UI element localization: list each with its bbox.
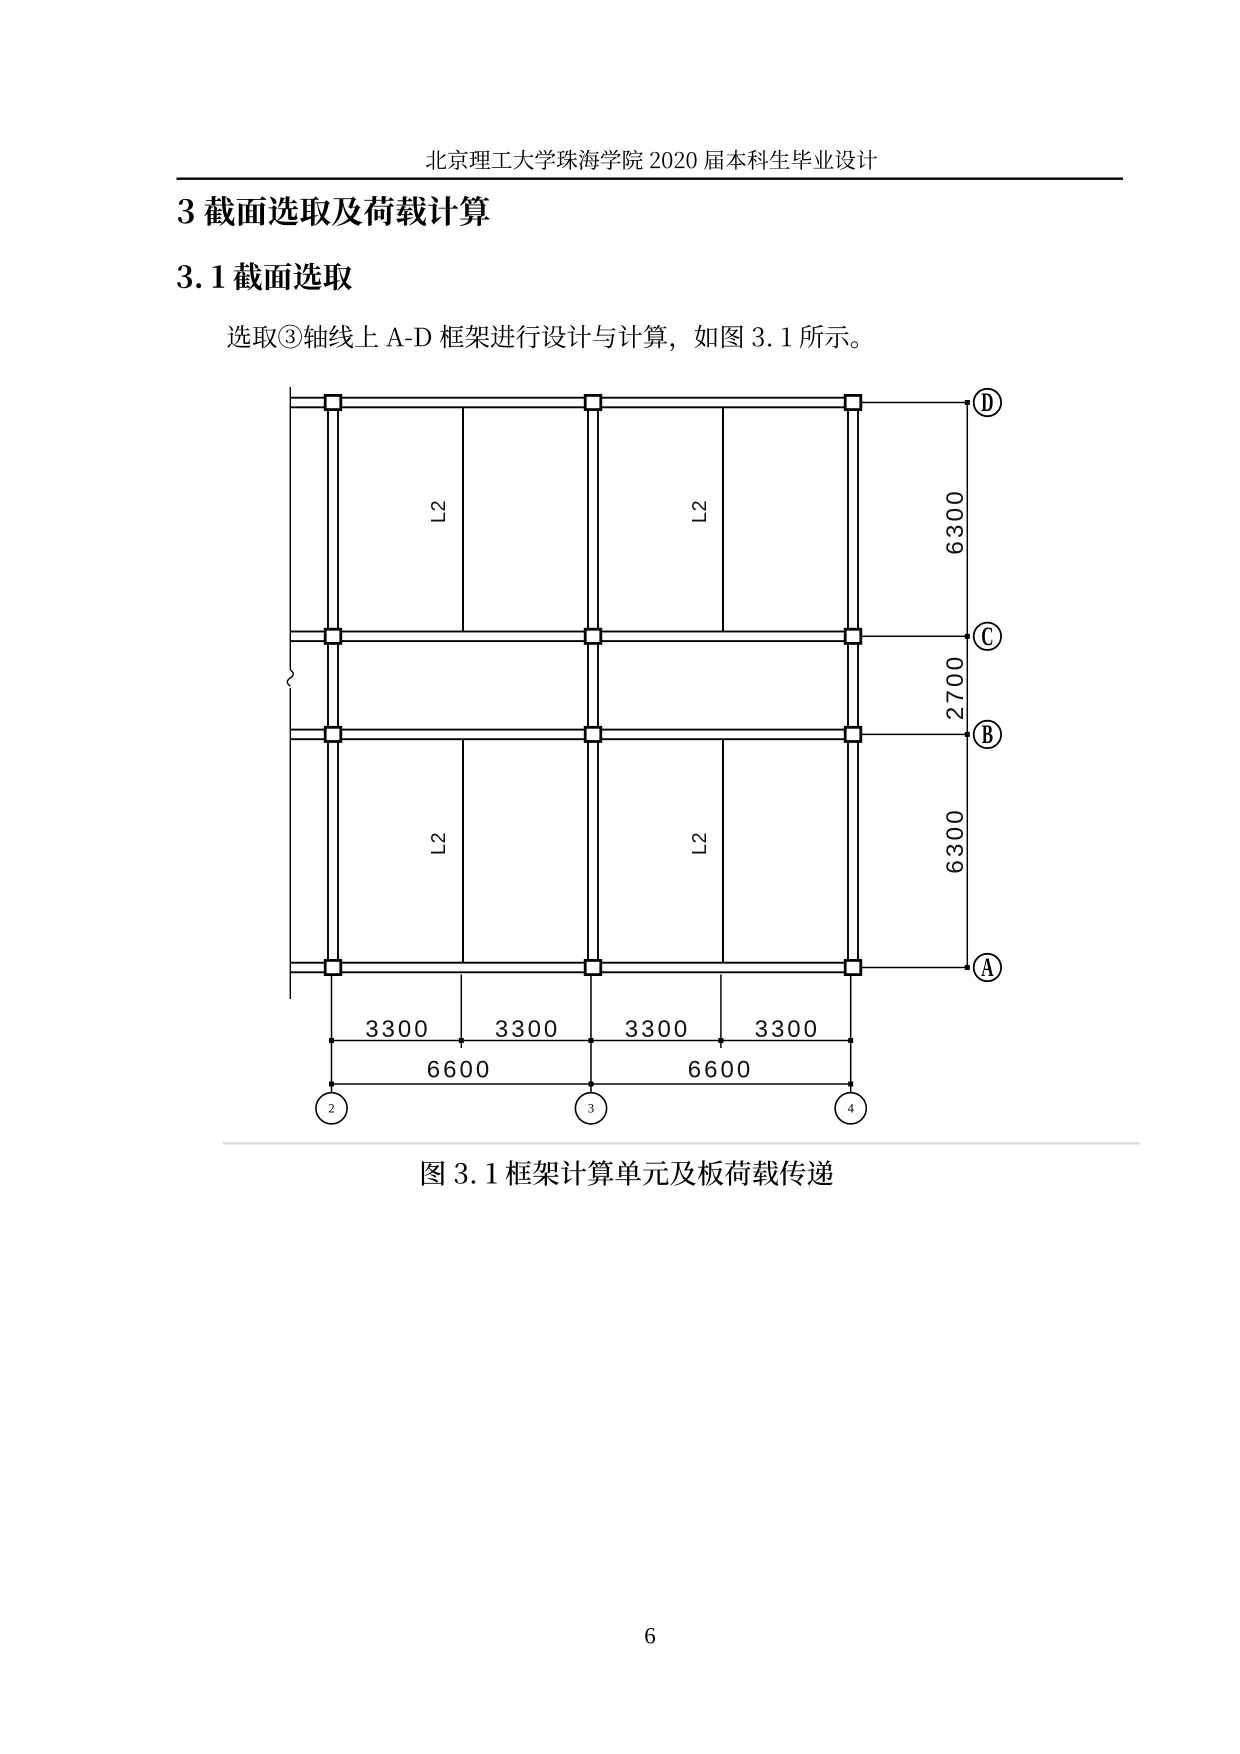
svg-text:6600: 6600 xyxy=(688,1056,753,1083)
svg-text:D: D xyxy=(981,387,993,417)
svg-text:6300: 6300 xyxy=(942,807,969,874)
svg-text:L2: L2 xyxy=(428,832,450,855)
svg-text:6600: 6600 xyxy=(427,1056,492,1083)
svg-text:3300: 3300 xyxy=(625,1016,690,1043)
svg-text:2: 2 xyxy=(328,1102,334,1116)
svg-text:3300: 3300 xyxy=(755,1016,820,1043)
svg-text:3300: 3300 xyxy=(365,1016,430,1043)
svg-text:3300: 3300 xyxy=(495,1016,560,1043)
svg-text:L2: L2 xyxy=(428,500,450,523)
svg-text:A: A xyxy=(981,952,993,982)
svg-text:L2: L2 xyxy=(689,832,711,855)
svg-text:6300: 6300 xyxy=(942,488,969,555)
svg-text:4: 4 xyxy=(848,1102,855,1116)
svg-text:L2: L2 xyxy=(689,500,711,523)
svg-text:2700: 2700 xyxy=(942,654,969,721)
svg-text:C: C xyxy=(981,621,993,651)
svg-text:3: 3 xyxy=(588,1102,594,1116)
svg-text:6: 6 xyxy=(644,1624,656,1649)
svg-text:B: B xyxy=(982,719,994,749)
